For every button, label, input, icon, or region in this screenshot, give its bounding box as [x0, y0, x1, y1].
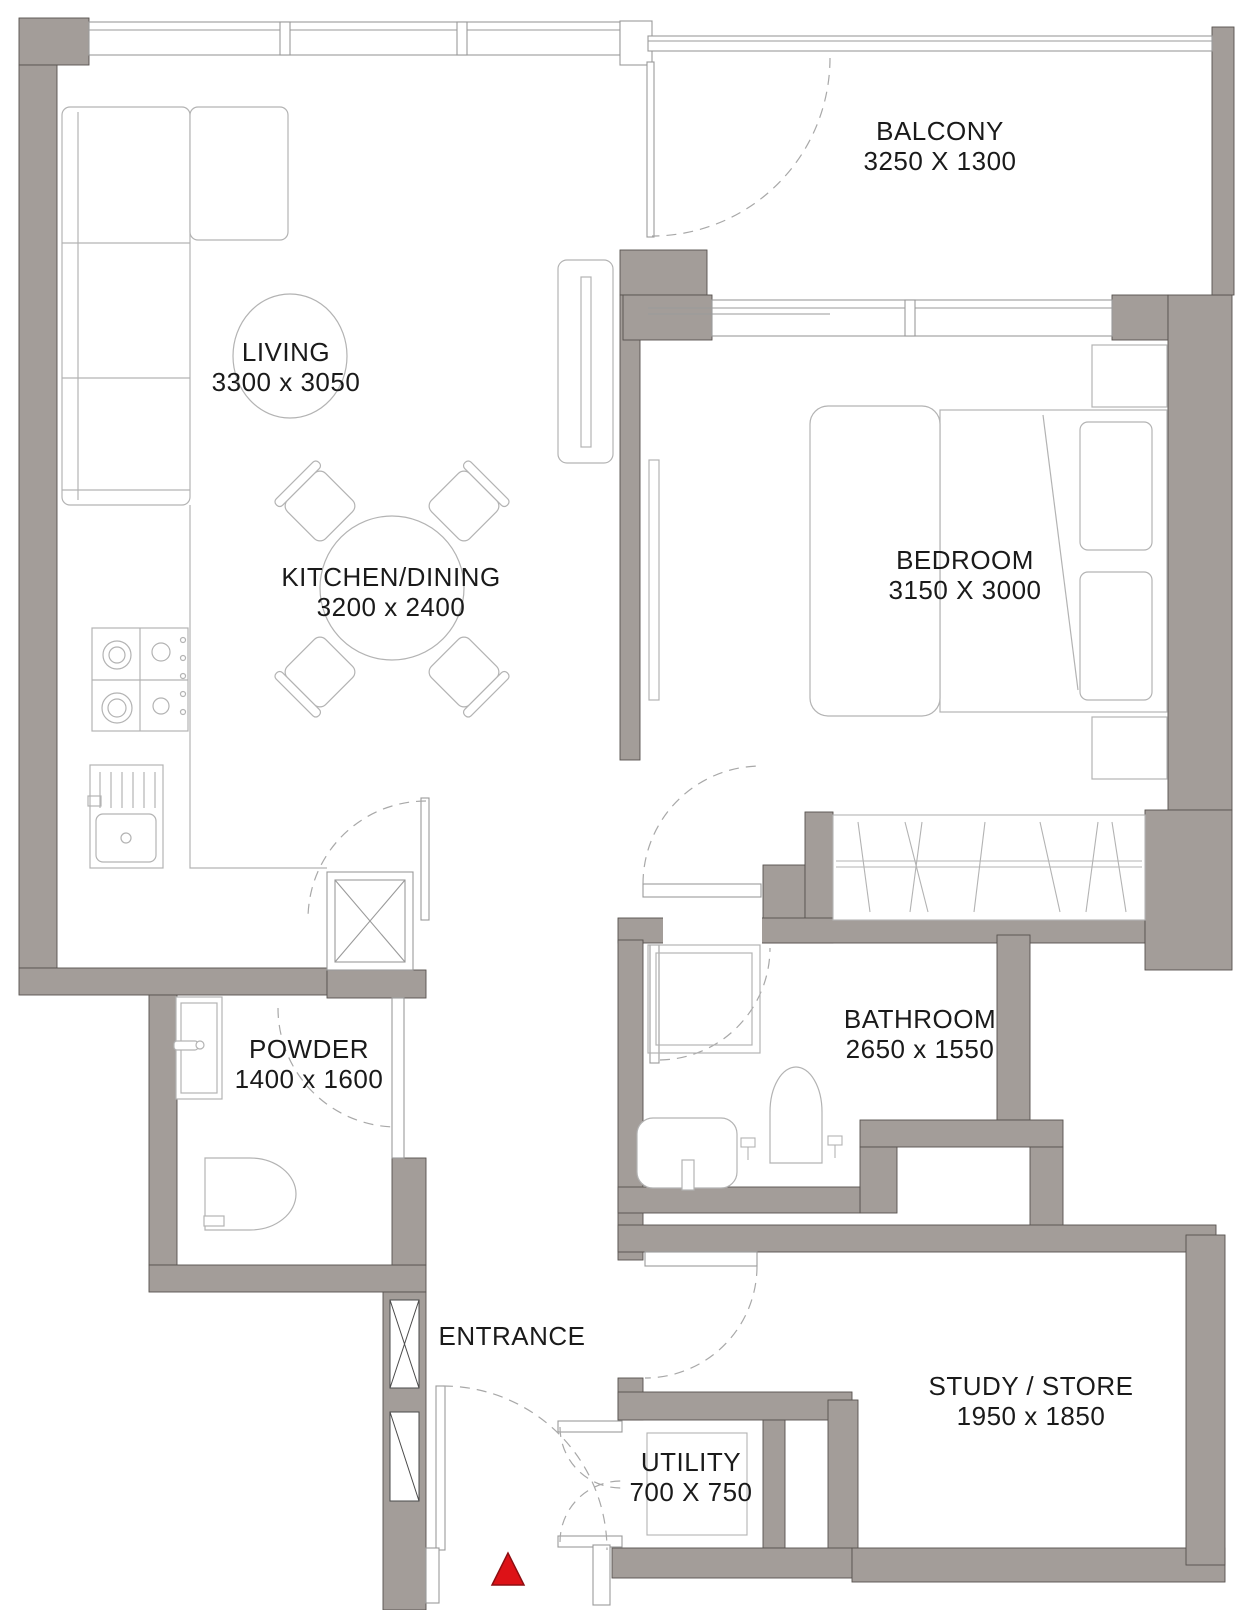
balcony-parapet: [648, 36, 1212, 51]
nightstand-bottom: [1092, 717, 1167, 779]
room-label-bathroom: BATHROOM 2650 x 1550: [844, 1004, 996, 1064]
room-dims: 3200 x 2400: [281, 592, 500, 622]
hob: [92, 628, 188, 731]
room-label-kitchen: KITCHEN/DINING 3200 x 2400: [281, 562, 500, 622]
kitchen-sink: [88, 765, 163, 868]
room-label-bedroom: BEDROOM 3150 X 3000: [889, 545, 1042, 605]
room-name: UTILITY: [629, 1447, 752, 1477]
balcony-door-leaf: [647, 62, 654, 237]
room-label-study: STUDY / STORE 1950 x 1850: [929, 1371, 1134, 1431]
entrance-marker-icon: [492, 1553, 524, 1585]
room-dims: 3250 X 1300: [864, 146, 1017, 176]
room-label-entrance: ENTRANCE: [438, 1321, 585, 1351]
wardrobe: [833, 815, 1145, 920]
kitchen-shaft: [327, 872, 413, 970]
shower: [648, 945, 760, 1053]
bathroom-doorway: [663, 916, 762, 945]
bathroom-toilet: [770, 1067, 822, 1163]
utility-door-leaf-top: [558, 1421, 622, 1432]
nightstand-top: [1092, 345, 1167, 407]
entrance-door-leaf: [436, 1386, 445, 1550]
utility-door-leaf-bottom: [558, 1536, 622, 1547]
room-dims: 3150 X 3000: [889, 575, 1042, 605]
kitchen-hall-door-leaf: [421, 798, 429, 920]
room-label-powder: POWDER 1400 x 1600: [235, 1034, 384, 1094]
bathroom-sink: [637, 1118, 737, 1190]
powder-sink: [174, 997, 222, 1099]
powder-door-frame: [392, 998, 404, 1158]
room-dims: 1400 x 1600: [235, 1064, 384, 1094]
living-window: [89, 22, 620, 55]
balcony-door-frame: [620, 21, 652, 65]
study-door-leaf: [645, 1252, 757, 1266]
room-name: ENTRANCE: [438, 1321, 585, 1351]
room-label-balcony: BALCONY 3250 X 1300: [864, 116, 1017, 176]
bedroom-door-leaf: [643, 884, 761, 897]
room-label-utility: UTILITY 700 X 750: [629, 1447, 752, 1507]
bedroom-tv: [649, 460, 659, 700]
entrance-frame-right: [593, 1545, 610, 1605]
room-dims: 3300 x 3050: [212, 367, 361, 397]
room-dims: 700 X 750: [629, 1477, 752, 1507]
floor-plan-canvas: [0, 0, 1249, 1610]
room-name: KITCHEN/DINING: [281, 562, 500, 592]
tv-console: [558, 260, 613, 463]
entrance-frame-left: [426, 1548, 439, 1603]
room-name: BATHROOM: [844, 1004, 996, 1034]
room-name: BEDROOM: [889, 545, 1042, 575]
room-name: STUDY / STORE: [929, 1371, 1134, 1401]
room-dims: 2650 x 1550: [844, 1034, 996, 1064]
room-name: POWDER: [235, 1034, 384, 1064]
room-label-living: LIVING 3300 x 3050: [212, 337, 361, 397]
room-name: BALCONY: [864, 116, 1017, 146]
room-name: LIVING: [212, 337, 361, 367]
sofa: [62, 107, 288, 505]
room-dims: 1950 x 1850: [929, 1401, 1134, 1431]
floor-plan: BALCONY 3250 X 1300 LIVING 3300 x 3050 K…: [0, 0, 1249, 1610]
powder-toilet: [204, 1158, 296, 1230]
